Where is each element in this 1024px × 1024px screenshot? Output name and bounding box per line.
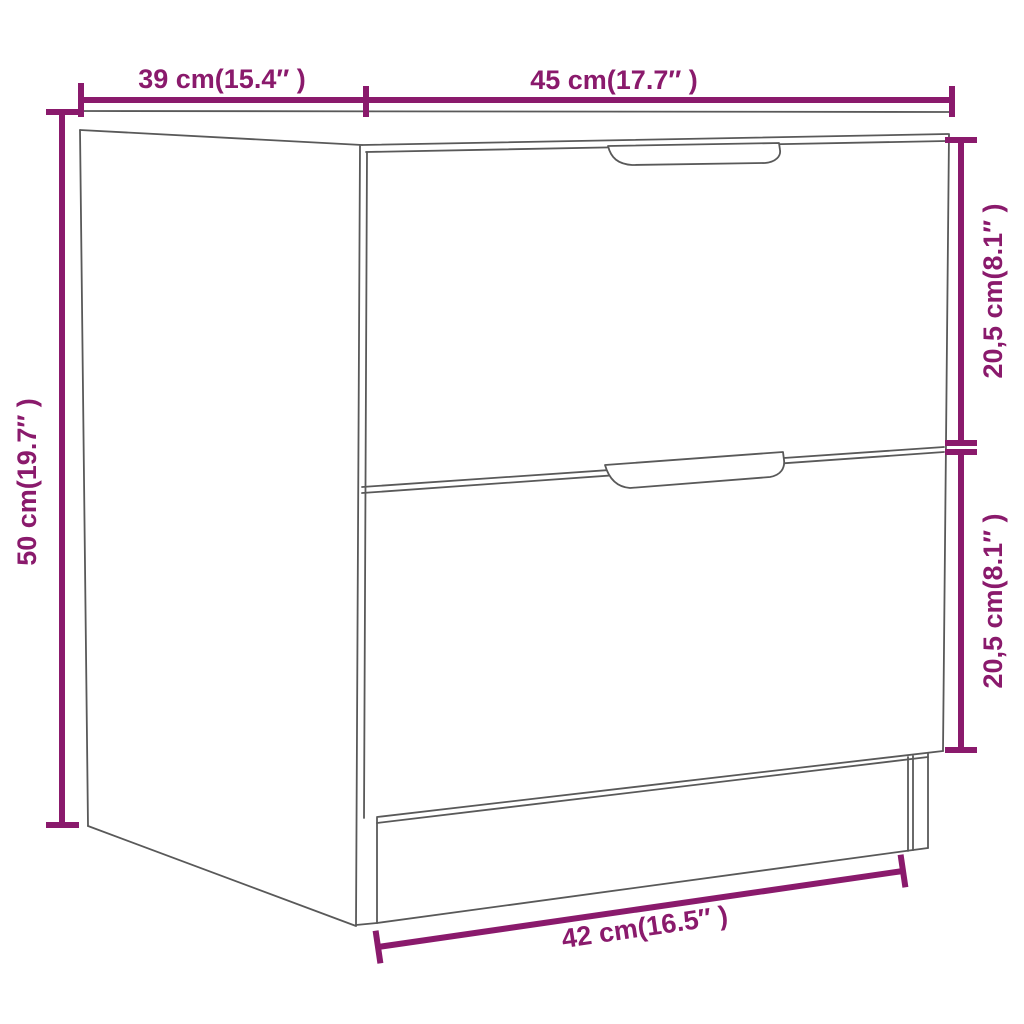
label-width-45cm: 45 cm(17.7″ ) <box>530 65 698 95</box>
drawer-1-handle <box>608 143 780 165</box>
top-panel-left-front-edge <box>80 130 362 145</box>
label-height-50cm: 50 cm(19.7″ ) <box>12 398 42 566</box>
dimension-lines <box>46 83 977 963</box>
front-face-left-edge <box>364 152 367 818</box>
dimension-labels: 39 cm(15.4″ ) 45 cm(17.7″ ) 50 cm(19.7″ … <box>12 64 1008 954</box>
label-upper-drawer-20-5cm: 20,5 cm(8.1″ ) <box>978 203 1008 378</box>
plinth-top-edge <box>377 757 928 823</box>
side-panel-left-edge <box>80 130 88 826</box>
bottom-dimension-cap-left <box>376 931 381 964</box>
bottom-dimension-cap-right <box>901 855 906 888</box>
label-depth-39cm: 39 cm(15.4″ ) <box>138 64 306 94</box>
nightstand-dimension-diagram: 39 cm(15.4″ ) 45 cm(17.7″ ) 50 cm(19.7″ … <box>0 0 1024 1024</box>
side-front-join-edge <box>356 146 360 925</box>
cabinet-drawing <box>78 111 951 926</box>
side-panel-bottom-thickness <box>356 923 377 925</box>
label-lower-drawer-20-5cm: 20,5 cm(8.1″ ) <box>978 513 1008 688</box>
side-panel-bottom-edge <box>88 826 356 926</box>
top-panel-back-edge <box>78 111 951 112</box>
dimension-diagram-canvas: 39 cm(15.4″ ) 45 cm(17.7″ ) 50 cm(19.7″ … <box>0 0 1024 1024</box>
plinth-right-bottom-edge <box>913 848 928 850</box>
drawer-2-handle <box>605 452 784 488</box>
drawer-bottom-edge <box>377 751 943 817</box>
